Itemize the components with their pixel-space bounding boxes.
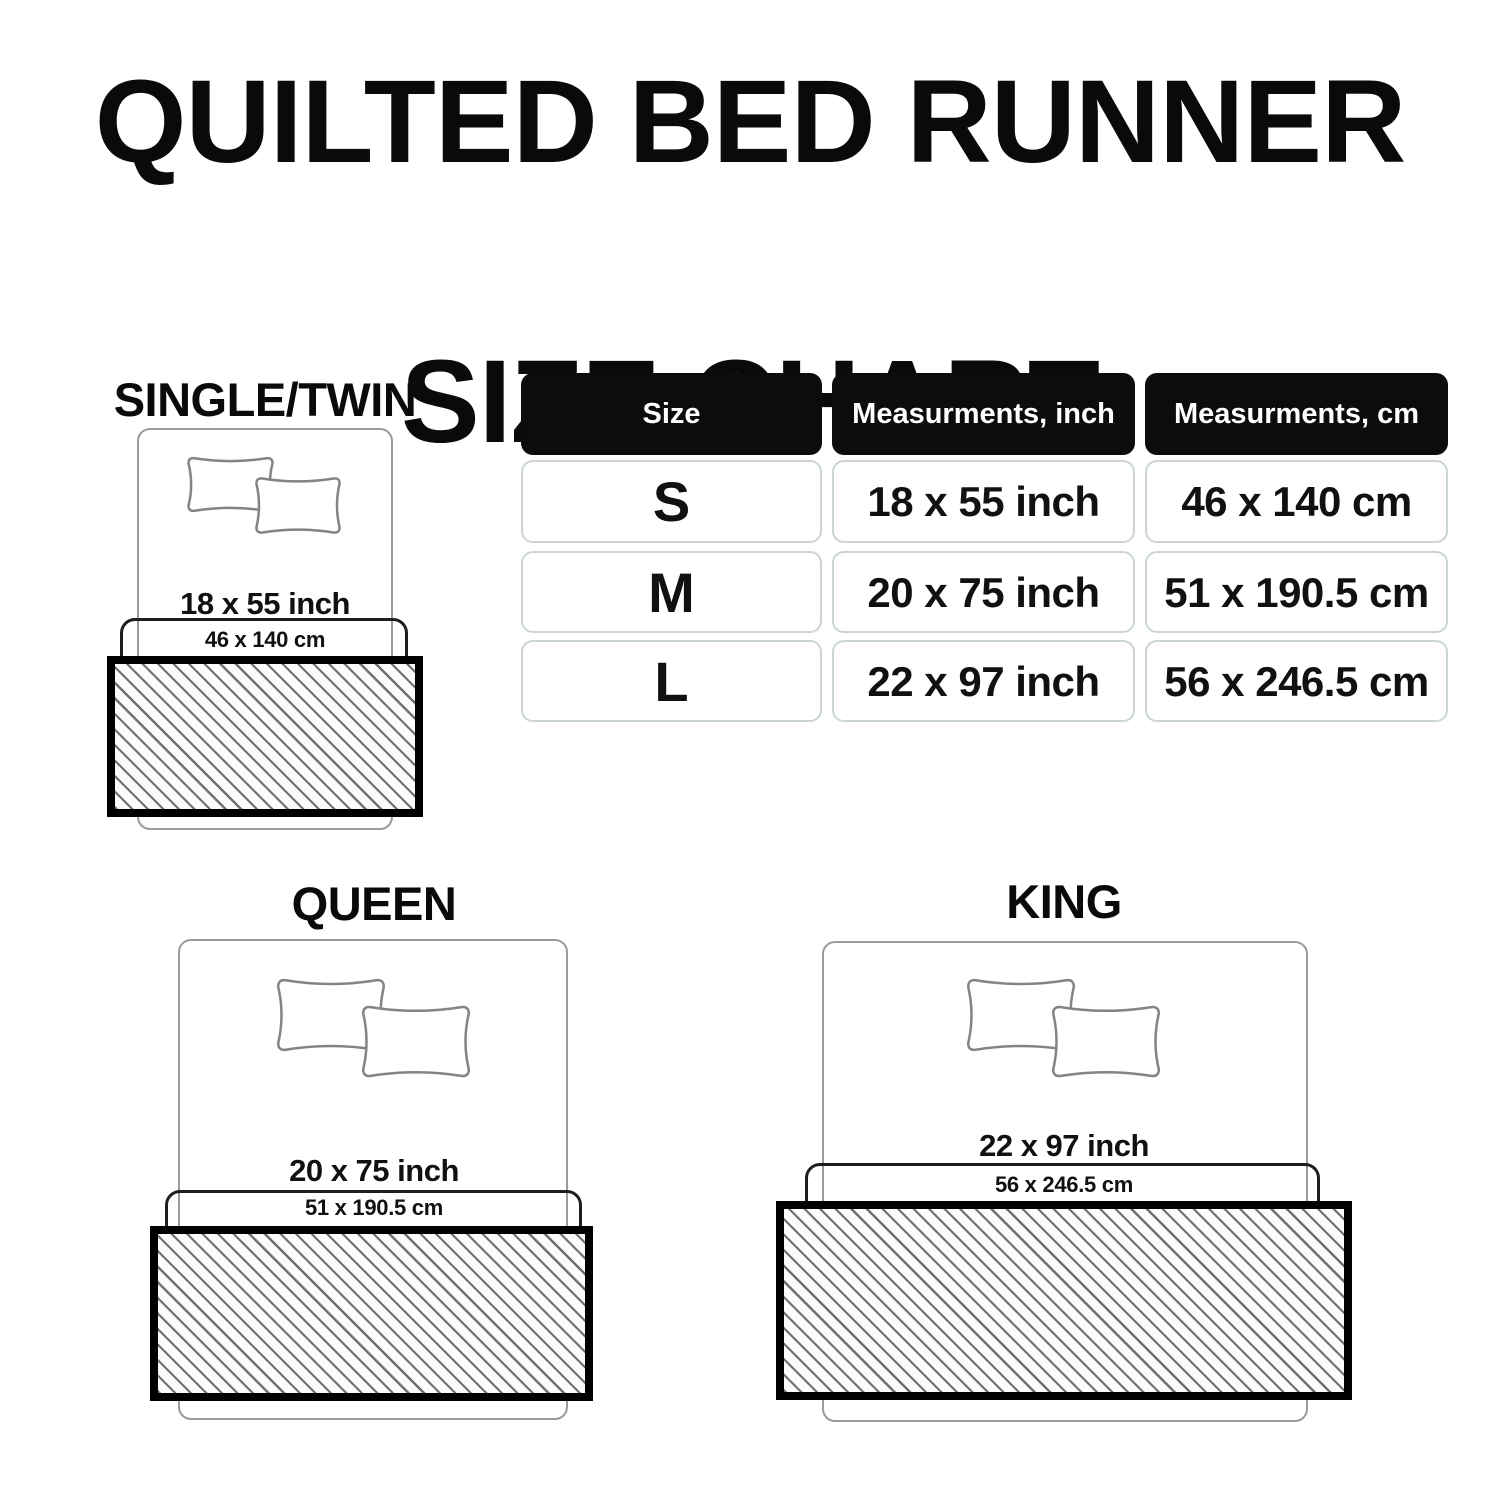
table-cell-inch-l: 22 x 97 inch (832, 640, 1135, 722)
king-inch-label: 22 x 97 inch (914, 1127, 1214, 1164)
pillow-front-icon (246, 469, 350, 542)
table-cell-size-l: L (521, 640, 822, 722)
single-twin-cm-label: 46 x 140 cm (115, 626, 415, 653)
table-header-size: Size (521, 373, 822, 455)
king-cm-label: 56 x 246.5 cm (914, 1171, 1214, 1198)
table-cell-inch-m: 20 x 75 inch (832, 551, 1135, 633)
section-title-king: KING (864, 874, 1264, 930)
queen-bed-runner-swatch (150, 1226, 593, 1401)
single-twin-inch-label: 18 x 55 inch (115, 585, 415, 622)
size-chart-infographic: QUILTED BED RUNNER SIZE CHART SINGLE/TWI… (0, 0, 1500, 1500)
section-title-single-twin: SINGLE/TWIN (65, 372, 465, 428)
table-header-cm: Measurments, cm (1145, 373, 1448, 455)
table-cell-inch-s: 18 x 55 inch (832, 460, 1135, 543)
table-cell-cm-l: 56 x 246.5 cm (1145, 640, 1448, 722)
table-cell-size-s: S (521, 460, 822, 543)
pillow-front-icon (1040, 995, 1172, 1088)
table-cell-cm-m: 51 x 190.5 cm (1145, 551, 1448, 633)
queen-inch-label: 20 x 75 inch (224, 1152, 524, 1189)
table-cell-size-m: M (521, 551, 822, 633)
table-header-inch: Measurments, inch (832, 373, 1135, 455)
single-twin-bed-runner-swatch (107, 656, 423, 817)
queen-cm-label: 51 x 190.5 cm (224, 1194, 524, 1221)
table-cell-cm-s: 46 x 140 cm (1145, 460, 1448, 543)
page-title-line1: QUILTED BED RUNNER (95, 56, 1406, 188)
section-title-queen: QUEEN (174, 876, 574, 932)
pillow-front-icon (350, 995, 482, 1088)
king-bed-runner-swatch (776, 1201, 1352, 1400)
